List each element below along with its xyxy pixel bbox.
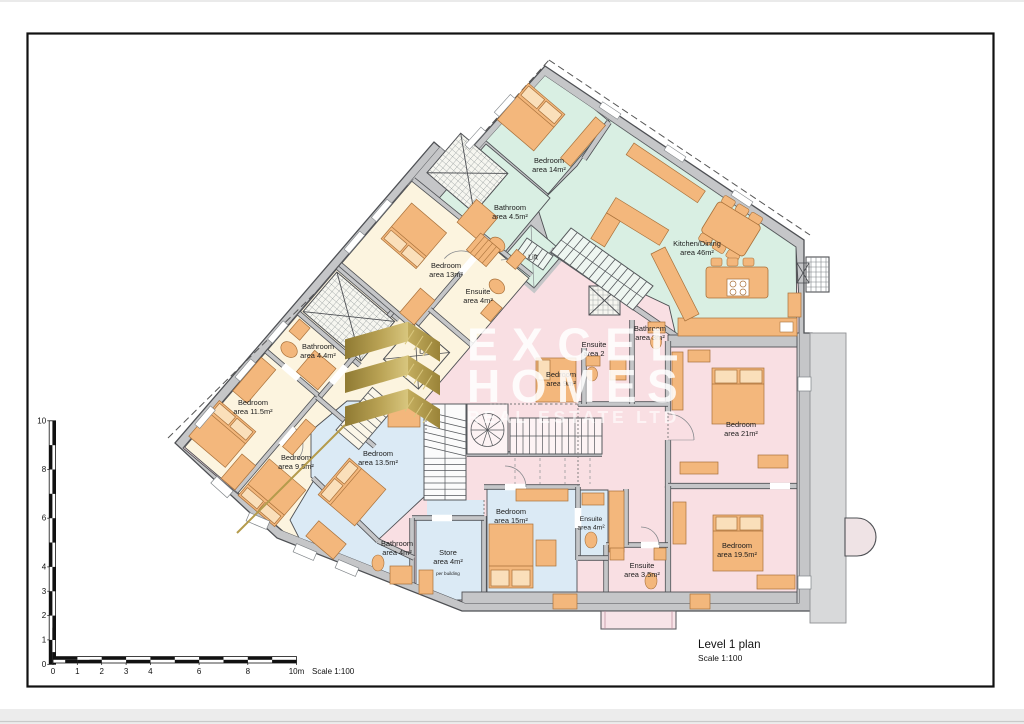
svg-text:Scale 1:100: Scale 1:100 <box>312 667 355 676</box>
svg-text:Ensuitearea 4m²: Ensuitearea 4m² <box>463 287 493 305</box>
svg-text:Bedroomarea 21m²: Bedroomarea 21m² <box>724 420 758 438</box>
svg-text:1: 1 <box>42 635 47 644</box>
svg-text:2: 2 <box>99 667 104 676</box>
svg-text:8: 8 <box>42 465 47 474</box>
svg-text:Lift: Lift <box>528 253 538 262</box>
svg-text:6: 6 <box>197 667 202 676</box>
svg-text:Ensuitearea 4m²: Ensuitearea 4m² <box>577 516 605 532</box>
svg-text:0: 0 <box>42 660 47 669</box>
svg-text:Bedroomarea 15m²: Bedroomarea 15m² <box>494 507 528 525</box>
svg-text:3: 3 <box>124 667 129 676</box>
svg-text:Bedroomarea 11.5m²: Bedroomarea 11.5m² <box>233 398 273 416</box>
svg-text:4: 4 <box>42 562 47 571</box>
svg-text:3: 3 <box>42 587 47 596</box>
svg-text:6: 6 <box>42 514 47 523</box>
svg-text:0: 0 <box>51 667 56 676</box>
svg-text:per building: per building <box>436 571 460 576</box>
svg-text:8: 8 <box>246 667 251 676</box>
svg-text:10m: 10m <box>289 667 305 676</box>
svg-text:Level 1 plan: Level 1 plan <box>698 638 761 651</box>
svg-text:1: 1 <box>75 667 80 676</box>
svg-text:Bedroomarea 13m²: Bedroomarea 13m² <box>429 261 463 279</box>
svg-text:Kitchen/Diningarea 46m²: Kitchen/Diningarea 46m² <box>673 239 721 257</box>
svg-text:Bedroomarea 14m²: Bedroomarea 14m² <box>532 156 566 174</box>
svg-text:10: 10 <box>37 416 46 425</box>
svg-text:Bedroomarea 13.5m²: Bedroomarea 13.5m² <box>358 449 398 467</box>
svg-text:Bathroomarea 4.4m²: Bathroomarea 4.4m² <box>300 342 336 360</box>
svg-text:2: 2 <box>42 611 47 620</box>
svg-text:REAL ESTATE LTD: REAL ESTATE LTD <box>467 407 680 427</box>
svg-text:Bedroomarea 19.5m²: Bedroomarea 19.5m² <box>717 541 757 559</box>
svg-text:Bathroomarea 4m²: Bathroomarea 4m² <box>381 539 413 557</box>
svg-text:4: 4 <box>148 667 153 676</box>
svg-text:Bathroomarea 4.5m²: Bathroomarea 4.5m² <box>492 203 528 221</box>
svg-text:HOMES: HOMES <box>467 360 688 412</box>
svg-text:Scale 1:100: Scale 1:100 <box>698 653 743 663</box>
